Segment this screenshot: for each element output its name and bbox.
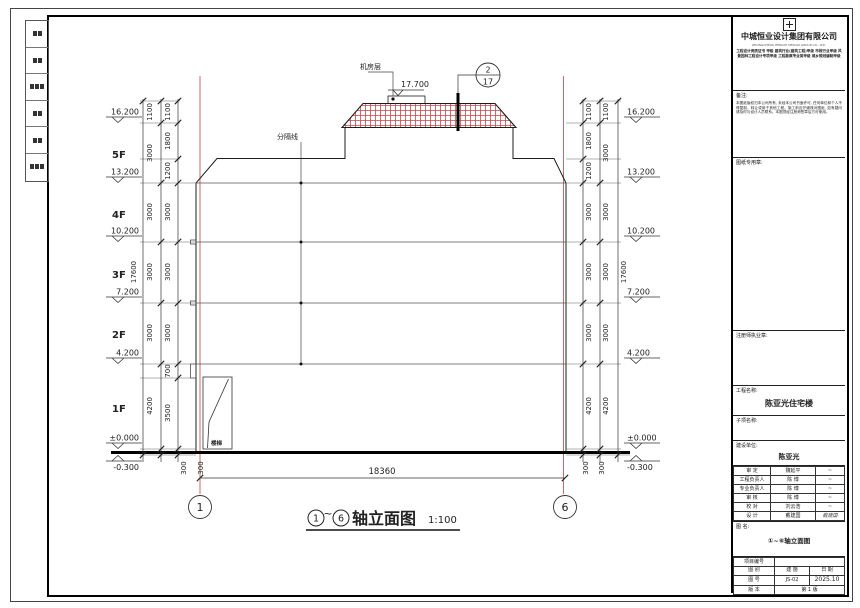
registration-stamp-label: 注册师执业章: [736, 333, 768, 339]
svg-text:3000: 3000 [602, 324, 610, 342]
role-signature: ~ [816, 503, 845, 512]
company-license-text: 工程设计资质证书 甲级 建筑行业(建筑工程)甲级 市政行业甲级 风景园林工程设计… [736, 49, 842, 59]
role-label: 审 核 [734, 494, 771, 503]
axis-lines [200, 76, 564, 494]
sheet-no-value: JS-02 [775, 575, 810, 585]
note-section: 备注: 本图纸版权归本公司所有, 未经本公司书面许可, 任何单位和个人不得复制、… [733, 91, 845, 158]
table-row: 设 计 戴建国 戴建国 [734, 512, 845, 521]
svg-text:3000: 3000 [602, 263, 610, 281]
project-no-value [775, 558, 845, 567]
floor-labels: 5F 4F 3F 2F 1F [112, 150, 126, 415]
svg-text:3000: 3000 [164, 203, 172, 221]
svg-text:4200: 4200 [602, 397, 610, 415]
svg-text:3000: 3000 [146, 263, 154, 281]
roof-elevation-marker: 17.700 [388, 80, 429, 96]
svg-text:17: 17 [483, 78, 493, 87]
client-label: 建设单位: [736, 443, 758, 449]
meta-table: 项目编号 图 别 建 施 日 期 图 号 JS-02 2025.10 版 本 第… [733, 557, 845, 595]
personnel-table: 审 定 魏延平 ~ 工程负责人 陈 博 ~ 专业负责人 陈 博 ~ 审 核 陈 … [733, 466, 845, 522]
svg-text:1: 1 [313, 514, 319, 525]
svg-text:3500: 3500 [164, 404, 172, 422]
floor-lines [196, 183, 566, 364]
svg-text:-0.300: -0.300 [627, 463, 653, 472]
svg-text:1F: 1F [112, 404, 126, 415]
elevation-markers-right: 16.200 13.200 10.200 7.200 4.200 ±0.000 … [624, 108, 660, 473]
svg-text:2F: 2F [112, 330, 126, 341]
svg-text:13.200: 13.200 [627, 168, 655, 177]
ground-line [111, 451, 630, 454]
svg-text:分隔线: 分隔线 [277, 132, 298, 141]
svg-text:13.200: 13.200 [111, 168, 139, 177]
svg-text:3000: 3000 [164, 263, 172, 281]
svg-text:楼梯: 楼梯 [211, 439, 223, 447]
company-logo [783, 18, 796, 31]
role-signature: ~ [816, 467, 845, 476]
svg-text:1:100: 1:100 [428, 515, 457, 526]
date-label: 日 期 [810, 566, 845, 575]
svg-text:1100: 1100 [585, 103, 593, 121]
subitem-label: 子项名称: [736, 418, 758, 424]
svg-text:~: ~ [323, 507, 332, 520]
table-row: 校 对 刘云浩 ~ [734, 503, 845, 512]
svg-text:4F: 4F [112, 210, 126, 221]
svg-text:4200: 4200 [146, 397, 154, 415]
note-text: 本图纸版权归本公司所有, 未经本公司书面许可, 任何单位和个人不得复制、转让或用… [736, 101, 842, 116]
svg-text:2: 2 [485, 66, 490, 75]
wall-moldings [191, 240, 197, 378]
company-name: 中城恒业设计集团有限公司 [736, 32, 842, 43]
svg-text:3000: 3000 [146, 144, 154, 162]
project-name-label: 工程名称: [736, 388, 758, 394]
svg-text:轴立面图: 轴立面图 [352, 509, 416, 528]
svg-text:1100: 1100 [146, 103, 154, 121]
svg-text:3F: 3F [112, 270, 126, 281]
svg-text:7.200: 7.200 [627, 288, 650, 297]
company-name-en: ZHONGCHENG HENGYE DESIGN GROUP CO., LTD. [736, 43, 842, 47]
svg-text:300: 300 [582, 461, 590, 474]
svg-text:3000: 3000 [164, 324, 172, 342]
role-name: 刘云浩 [771, 503, 816, 512]
client-section: 建设单位: 陈亚光 [733, 441, 845, 466]
svg-text:700: 700 [164, 364, 172, 377]
entrance-door: 楼梯 [203, 377, 232, 449]
svg-text:6: 6 [338, 514, 344, 525]
extension-lines [140, 101, 630, 455]
axis-bubble-1: 1 [189, 496, 212, 519]
drawing-stamp-label: 图纸专用章: [736, 160, 763, 166]
sheet-no-label: 图 号 [734, 575, 775, 585]
role-label: 工程负责人 [734, 476, 771, 485]
svg-text:16.200: 16.200 [627, 108, 655, 117]
svg-text:3000: 3000 [146, 324, 154, 342]
role-label: 设 计 [734, 512, 771, 521]
client-name: 陈亚光 [736, 453, 842, 462]
svg-text:300: 300 [197, 461, 205, 474]
drawing-stamp-box: 图纸专用章: [733, 158, 845, 331]
role-name: 陈 博 [771, 476, 816, 485]
svg-text:3000: 3000 [585, 263, 593, 281]
table-row: 专业负责人 陈 博 ~ [734, 485, 845, 494]
table-row: 图 别 建 施 日 期 [734, 566, 845, 575]
svg-text:1800: 1800 [585, 132, 593, 150]
svg-text:4200: 4200 [585, 397, 593, 415]
svg-text:6: 6 [562, 501, 569, 514]
dim-left-total: 17600 [130, 261, 138, 283]
svg-text:1: 1 [197, 501, 204, 514]
date-value: 2025.10 [810, 575, 845, 585]
svg-text:±0.000: ±0.000 [627, 434, 657, 443]
table-row: 项目编号 [734, 558, 845, 567]
axis-bubble-6: 6 [554, 496, 577, 519]
svg-text:4.200: 4.200 [116, 349, 139, 358]
category-value: 建 施 [775, 566, 810, 575]
svg-text:±0.000: ±0.000 [109, 434, 139, 443]
table-row: 审 核 陈 博 ~ [734, 494, 845, 503]
registration-stamp-box: 注册师执业章: [733, 331, 845, 386]
dim-right-total: 17600 [620, 261, 628, 283]
svg-text:1200: 1200 [164, 162, 172, 180]
svg-text:1200: 1200 [585, 162, 593, 180]
machine-room-label: 机房层 [360, 62, 395, 101]
role-name: 陈 博 [771, 494, 816, 503]
subitem-section: 子项名称: [733, 416, 845, 441]
note-label: 备注: [736, 93, 748, 99]
role-name: 魏延平 [771, 467, 816, 476]
svg-text:18360: 18360 [368, 467, 395, 477]
dimension-chains [143, 99, 618, 462]
dimension-ticks [140, 98, 621, 481]
role-name: 戴建国 [771, 512, 816, 521]
project-name: 陈亚光住宅楼 [736, 399, 842, 410]
svg-text:3000: 3000 [146, 203, 154, 221]
role-label: 审 定 [734, 467, 771, 476]
project-no-label: 项目编号 [734, 558, 775, 567]
paint-separation-line: 分隔线 [277, 132, 303, 366]
role-signature: 戴建国 [816, 512, 845, 521]
bottom-dimension: 18360 [200, 467, 565, 478]
drawing-name-label: 图 名: [736, 524, 749, 530]
table-row: 工程负责人 陈 博 ~ [734, 476, 845, 485]
table-row: 版 本 第 1 版 [734, 586, 845, 595]
drawing-name: ①~⑥轴立面图 [736, 537, 842, 546]
svg-text:4.200: 4.200 [627, 349, 650, 358]
svg-text:1100: 1100 [164, 103, 172, 121]
table-row: 图 号 JS-02 2025.10 [734, 575, 845, 585]
role-signature: ~ [816, 494, 845, 503]
svg-text:3000: 3000 [602, 203, 610, 221]
svg-text:17.700: 17.700 [401, 80, 429, 89]
drawing-title: 1 ~ 6 轴立面图 1:100 [306, 507, 460, 530]
drawing-name-section: 图 名: ①~⑥轴立面图 [733, 522, 845, 557]
svg-text:3000: 3000 [585, 203, 593, 221]
svg-text:300: 300 [598, 461, 606, 474]
svg-text:5F: 5F [112, 150, 126, 161]
role-label: 专业负责人 [734, 485, 771, 494]
svg-text:3000: 3000 [602, 144, 610, 162]
svg-text:3000: 3000 [585, 324, 593, 342]
role-name: 陈 博 [771, 485, 816, 494]
svg-text:16.200: 16.200 [111, 108, 139, 117]
elevation-markers-left: 16.200 13.200 10.200 7.200 4.200 ±0.000 … [106, 108, 142, 473]
svg-text:7.200: 7.200 [116, 288, 139, 297]
version-label: 版 本 [734, 586, 775, 595]
company-section: 中城恒业设计集团有限公司 ZHONGCHENG HENGYE DESIGN GR… [733, 15, 845, 91]
svg-text:1800: 1800 [164, 132, 172, 150]
category-label: 图 别 [734, 566, 775, 575]
building-outline [196, 96, 566, 451]
svg-text:-0.300: -0.300 [113, 463, 139, 472]
project-name-section: 工程名称: 陈亚光住宅楼 [733, 386, 845, 416]
table-row: 审 定 魏延平 ~ [734, 467, 845, 476]
role-label: 校 对 [734, 503, 771, 512]
role-signature: ~ [816, 476, 845, 485]
drawing-sheet: 分隔线 机房层 17.700 2 17 [0, 0, 860, 608]
svg-text:机房层: 机房层 [360, 62, 381, 71]
version-value: 第 1 版 [775, 586, 845, 595]
role-signature: ~ [816, 485, 845, 494]
svg-text:10.200: 10.200 [627, 227, 655, 236]
title-block: 中城恒业设计集团有限公司 ZHONGCHENG HENGYE DESIGN GR… [731, 15, 845, 593]
svg-text:1100: 1100 [602, 103, 610, 121]
svg-text:10.200: 10.200 [111, 227, 139, 236]
svg-text:300: 300 [180, 461, 188, 474]
